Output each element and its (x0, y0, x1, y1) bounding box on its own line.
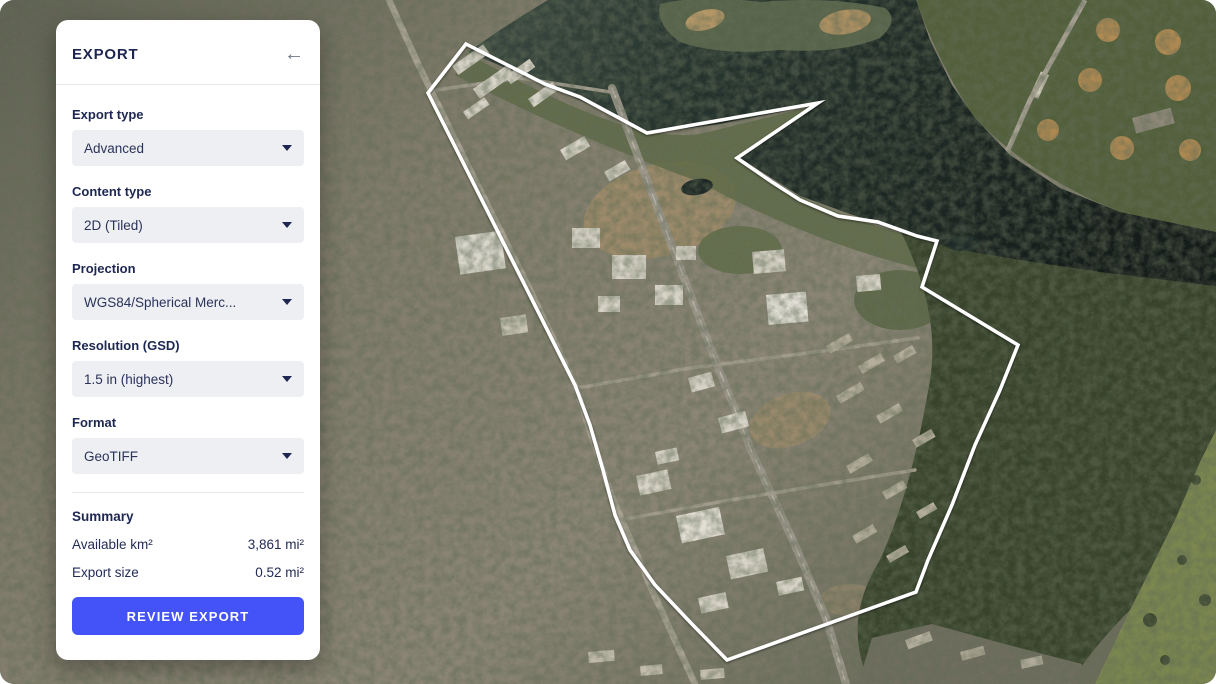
resolution-label: Resolution (GSD) (72, 338, 304, 353)
page-title: EXPORT (72, 46, 138, 63)
export-panel-header: EXPORT ← (56, 20, 320, 85)
export-size-value: 0.52 mi² (255, 565, 304, 580)
chevron-down-icon (282, 453, 292, 459)
projection-label: Projection (72, 261, 304, 276)
format-select[interactable]: GeoTIFF (72, 438, 304, 474)
export-type-value: Advanced (84, 141, 144, 156)
review-export-button[interactable]: REVIEW EXPORT (72, 597, 304, 635)
summary-heading: Summary (72, 509, 304, 524)
export-panel: EXPORT ← Export type Advanced Content ty… (56, 20, 320, 660)
app-screen: EXPORT ← Export type Advanced Content ty… (0, 0, 1216, 684)
summary-divider (72, 492, 304, 493)
available-value: 3,861 mi² (248, 537, 304, 552)
back-arrow-icon[interactable]: ← (284, 45, 304, 63)
export-size-label: Export size (72, 565, 139, 580)
summary-row-available: Available km² 3,861 mi² (72, 537, 304, 552)
chevron-down-icon (282, 299, 292, 305)
summary-row-export-size: Export size 0.52 mi² (72, 565, 304, 580)
available-label: Available km² (72, 537, 153, 552)
content-type-label: Content type (72, 184, 304, 199)
projection-value: WGS84/Spherical Merc... (84, 295, 236, 310)
export-panel-body: Export type Advanced Content type 2D (Ti… (56, 85, 320, 660)
export-type-label: Export type (72, 107, 304, 122)
projection-select[interactable]: WGS84/Spherical Merc... (72, 284, 304, 320)
format-label: Format (72, 415, 304, 430)
chevron-down-icon (282, 222, 292, 228)
chevron-down-icon (282, 145, 292, 151)
resolution-value: 1.5 in (highest) (84, 372, 173, 387)
resolution-select[interactable]: 1.5 in (highest) (72, 361, 304, 397)
chevron-down-icon (282, 376, 292, 382)
content-type-value: 2D (Tiled) (84, 218, 143, 233)
export-type-select[interactable]: Advanced (72, 130, 304, 166)
format-value: GeoTIFF (84, 449, 138, 464)
content-type-select[interactable]: 2D (Tiled) (72, 207, 304, 243)
